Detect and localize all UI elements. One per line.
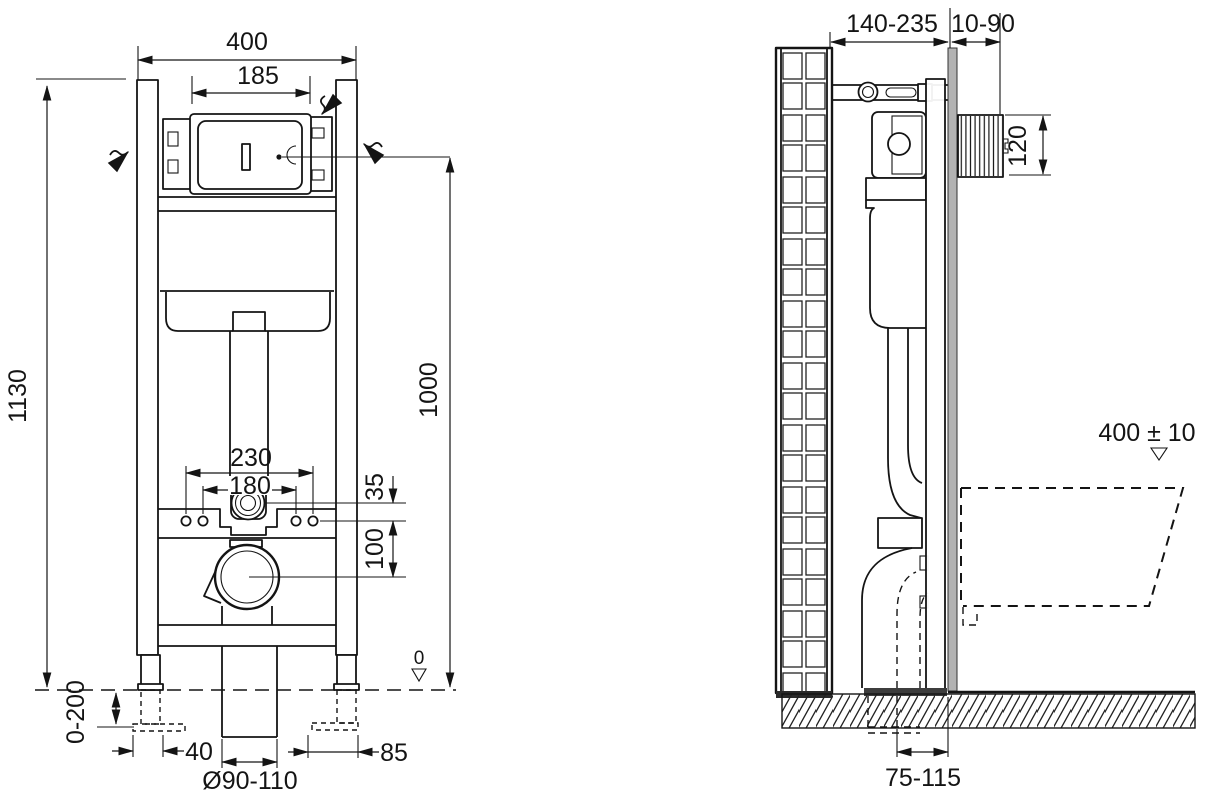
bowl-outlet-step [963,607,977,625]
water-supply-arrow-left-icon [110,151,128,155]
fixing-hole [198,516,207,525]
dim-overall-height: 1130 [4,369,32,423]
ext-85 [308,735,358,758]
dim-access-height: 120 [1004,125,1032,167]
dim-left-foot: 40 [185,738,213,766]
fixing-hole [308,516,317,525]
foot-right [337,655,356,685]
dim-foot-adjust: 0-200 [62,680,90,744]
flush-pipe-side [888,328,922,518]
drain-pipe [222,646,277,737]
dim-drain-offset: 100 [361,528,389,570]
front-view: 400 185 1130 1000 230 180 35 100 0 [4,28,456,795]
toilet-bowl-outline [961,488,1183,606]
foot-left-flange [133,724,185,731]
dim-plate-width: 185 [237,62,279,90]
masonry-wall-tiles [781,50,827,691]
cistern-body [866,200,926,328]
dim-overall-width: 400 [226,28,268,56]
drain-bend-outer [862,548,912,688]
frame-right-rail [336,80,357,655]
foot-right-flange [312,723,358,730]
water-supply-arrow-top-icon [321,96,325,114]
dim-frame-depth: 140-235 [846,10,938,38]
foot-left-base [138,684,163,690]
dim-inner-fixings: 180 [229,472,271,500]
fill-valve-float [888,133,910,155]
foot-right-extension [337,690,356,723]
dim-bowl-height: 400 ± 10 [1098,419,1195,447]
installation-drawing: 400 185 1130 1000 230 180 35 100 0 [0,0,1213,800]
ext-drain-pipe [222,739,277,768]
access-box-hatch [959,116,1002,176]
dim-drain-to-wall: 75-115 [885,764,961,792]
dim-outer-fixings: 230 [230,444,272,472]
fixing-hole [181,516,190,525]
ext-40 [133,735,163,757]
dim-bend-offset: 35 [361,473,389,501]
fixing-hole [291,516,300,525]
flush-plate-slot [242,144,250,170]
floor-zero-label: 0 [414,648,425,669]
bowl-height-triangle-icon [1151,448,1167,460]
frame-left-rail [137,80,158,655]
dim-finish-depth: 10-90 [951,10,1015,38]
support-bracket [878,518,922,548]
shutoff-valve-outer [859,83,878,102]
dim-drain-diameter: Ø90-110 [202,767,297,795]
foot-right-base [334,684,359,690]
floor-zero-triangle-icon [412,669,426,681]
technical-drawing-page: 400 185 1130 1000 230 180 35 100 0 [0,0,1213,800]
side-view: 140-235 10-90 120 400 ± 10 75-115 [776,8,1196,792]
drain-bend-hidden [897,572,928,688]
valve-slot [886,88,916,97]
upper-crossbar [158,197,336,211]
cistern-band [866,178,926,200]
frame-rail-side [926,79,945,690]
flush-pipe-connector [233,312,265,331]
foot-left [141,655,160,685]
foot-left-extension [141,690,160,724]
plate-center-dot [276,154,281,159]
dim-right-foot: 85 [380,739,408,767]
water-supply-arrow-right-icon [364,143,382,147]
dim-plate-height: 1000 [415,362,443,418]
lower-crossbar [158,625,336,646]
finished-wall-panel [948,48,957,691]
floor-slab [782,694,1195,728]
